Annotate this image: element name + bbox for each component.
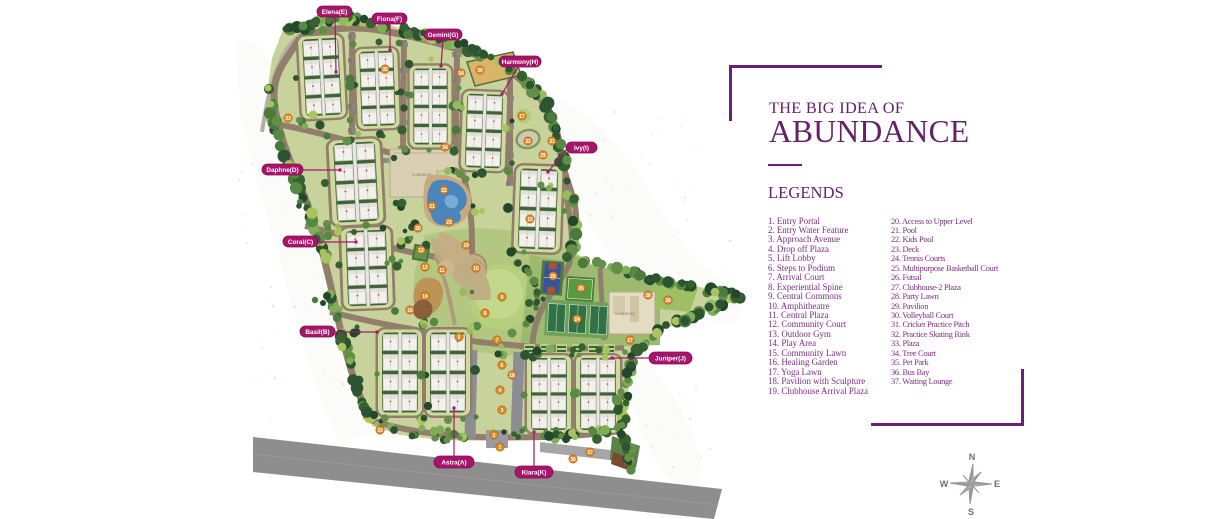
- svg-text:22: 22: [441, 188, 447, 194]
- svg-text:33: 33: [285, 116, 291, 122]
- svg-text:Ivy(I): Ivy(I): [574, 145, 589, 152]
- svg-text:36: 36: [570, 457, 576, 463]
- svg-text:24: 24: [574, 317, 580, 323]
- svg-text:W: W: [940, 479, 949, 489]
- svg-text:26: 26: [578, 286, 584, 292]
- svg-text:Daphne(D): Daphne(D): [266, 167, 298, 174]
- svg-text:34: 34: [458, 71, 464, 77]
- svg-text:23: 23: [446, 220, 452, 226]
- svg-text:37: 37: [587, 450, 593, 456]
- svg-text:4: 4: [499, 388, 502, 394]
- svg-text:1: 1: [499, 445, 502, 451]
- svg-text:Elena(E): Elena(E): [322, 9, 348, 16]
- svg-text:19: 19: [463, 243, 469, 249]
- svg-text:Juniper(J): Juniper(J): [655, 355, 686, 362]
- svg-text:34: 34: [442, 145, 448, 151]
- svg-text:10: 10: [473, 266, 479, 272]
- svg-text:31: 31: [549, 139, 555, 145]
- svg-text:28: 28: [665, 298, 671, 304]
- svg-text:21: 21: [429, 204, 435, 210]
- svg-text:6: 6: [501, 363, 504, 369]
- svg-text:11: 11: [439, 268, 445, 274]
- svg-text:Fiona(F): Fiona(F): [377, 16, 402, 23]
- svg-text:Harmony(H): Harmony(H): [502, 59, 539, 66]
- svg-text:13: 13: [422, 265, 428, 271]
- svg-text:9: 9: [501, 295, 504, 301]
- svg-text:N: N: [969, 452, 976, 462]
- svg-text:Kiara(K): Kiara(K): [522, 469, 547, 476]
- svg-text:Coral(C): Coral(C): [288, 239, 313, 246]
- svg-text:Basil(B): Basil(B): [305, 329, 329, 336]
- svg-text:25: 25: [550, 274, 556, 280]
- svg-text:12: 12: [418, 248, 424, 254]
- svg-text:17: 17: [519, 114, 525, 120]
- svg-text:CLUBHOUSE: CLUBHOUSE: [615, 312, 635, 316]
- svg-text:14: 14: [422, 294, 428, 300]
- svg-text:S: S: [968, 507, 974, 517]
- svg-text:E: E: [994, 479, 1000, 489]
- svg-text:33: 33: [377, 428, 383, 434]
- svg-text:29: 29: [540, 153, 546, 159]
- svg-text:2: 2: [493, 433, 496, 439]
- svg-text:35: 35: [382, 67, 388, 73]
- svg-text:32: 32: [525, 139, 531, 145]
- svg-text:28: 28: [645, 293, 651, 299]
- svg-text:Gemini(G): Gemini(G): [428, 32, 459, 39]
- svg-text:16: 16: [407, 308, 413, 314]
- svg-text:8: 8: [484, 311, 487, 317]
- svg-text:15: 15: [527, 217, 533, 223]
- svg-text:3: 3: [501, 408, 504, 414]
- svg-text:27: 27: [627, 338, 633, 344]
- svg-text:20: 20: [415, 226, 421, 232]
- svg-text:5: 5: [458, 335, 461, 341]
- svg-text:Astra(A): Astra(A): [441, 459, 466, 466]
- svg-text:30: 30: [477, 68, 483, 74]
- svg-text:18: 18: [509, 373, 515, 379]
- svg-text:7: 7: [496, 338, 499, 344]
